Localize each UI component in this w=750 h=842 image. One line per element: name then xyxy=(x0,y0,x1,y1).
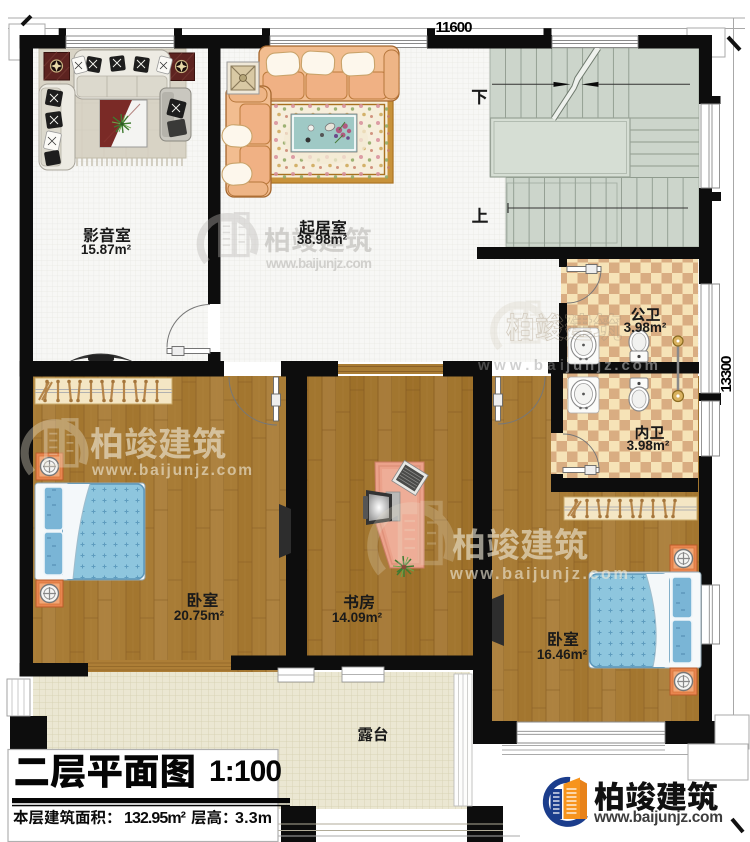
svg-text:junjz.com: junjz.com xyxy=(565,357,658,374)
svg-text:www.baijunjz.com: www.baijunjz.com xyxy=(265,256,372,271)
svg-text:www.baijunjz.com: www.baijunjz.com xyxy=(593,809,724,826)
svg-text:20.75m²: 20.75m² xyxy=(174,608,225,623)
svg-text:3.98m²: 3.98m² xyxy=(627,438,670,453)
svg-text:16.46m²: 16.46m² xyxy=(537,647,588,662)
svg-text:15.87m²: 15.87m² xyxy=(81,242,132,257)
svg-text:132.95m²: 132.95m² xyxy=(124,810,186,827)
svg-text:13300: 13300 xyxy=(718,356,735,393)
svg-text:3.3m: 3.3m xyxy=(235,810,272,827)
svg-text:1:100: 1:100 xyxy=(209,755,282,788)
svg-text:14.09m²: 14.09m² xyxy=(332,610,383,625)
svg-text:38.98m²: 38.98m² xyxy=(297,232,348,247)
svg-text:11600: 11600 xyxy=(436,19,473,36)
svg-text:3.98m²: 3.98m² xyxy=(624,320,667,335)
